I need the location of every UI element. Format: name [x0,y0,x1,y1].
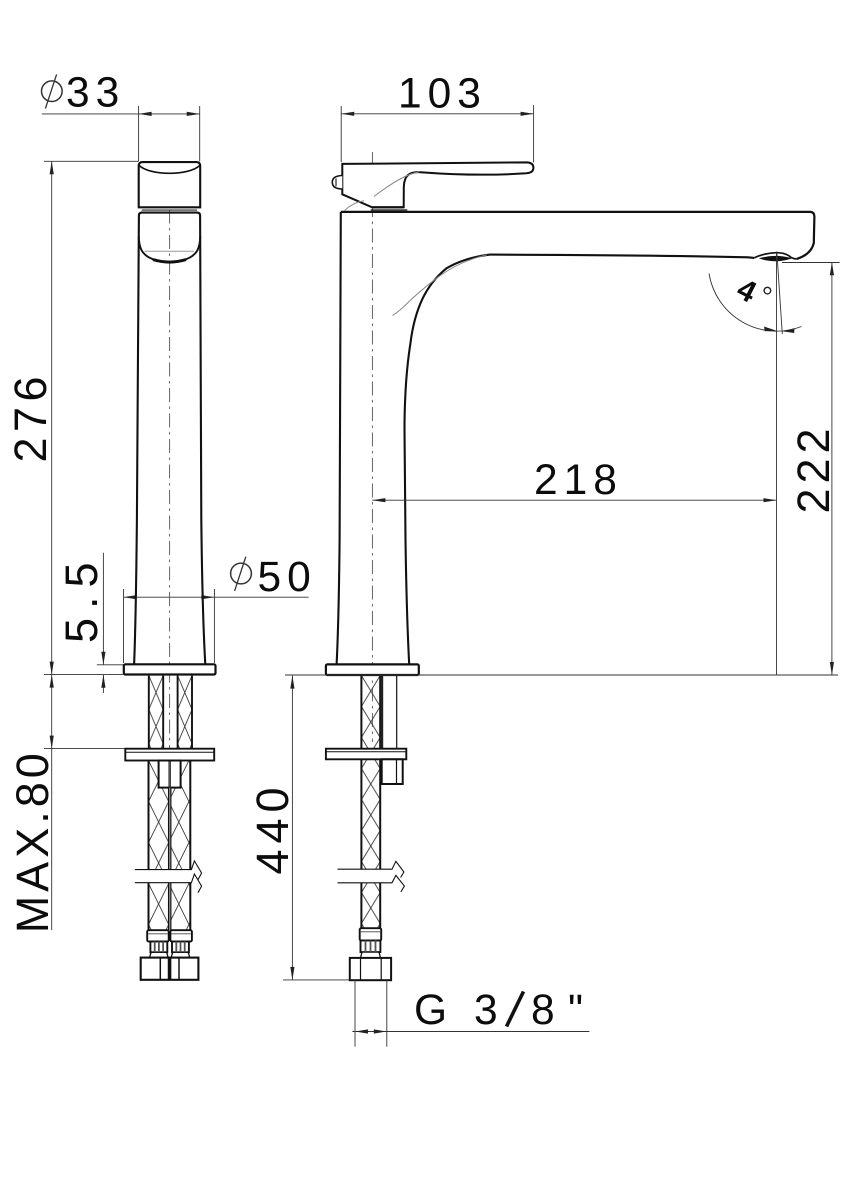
svg-text:222: 222 [788,423,839,513]
svg-text:8: 8 [531,987,561,1034]
svg-text:MAX.80: MAX.80 [7,749,58,933]
svg-text:G: G [414,987,453,1034]
svg-text:440: 440 [247,781,298,874]
svg-text:50: 50 [258,554,317,601]
svg-text:276: 276 [5,371,56,463]
svg-text:103: 103 [398,71,487,118]
svg-text:33: 33 [66,69,125,116]
svg-text:3: 3 [474,987,504,1034]
svg-text:5.5: 5.5 [56,553,107,643]
svg-text:218: 218 [534,457,623,504]
svg-text:": " [568,987,589,1034]
